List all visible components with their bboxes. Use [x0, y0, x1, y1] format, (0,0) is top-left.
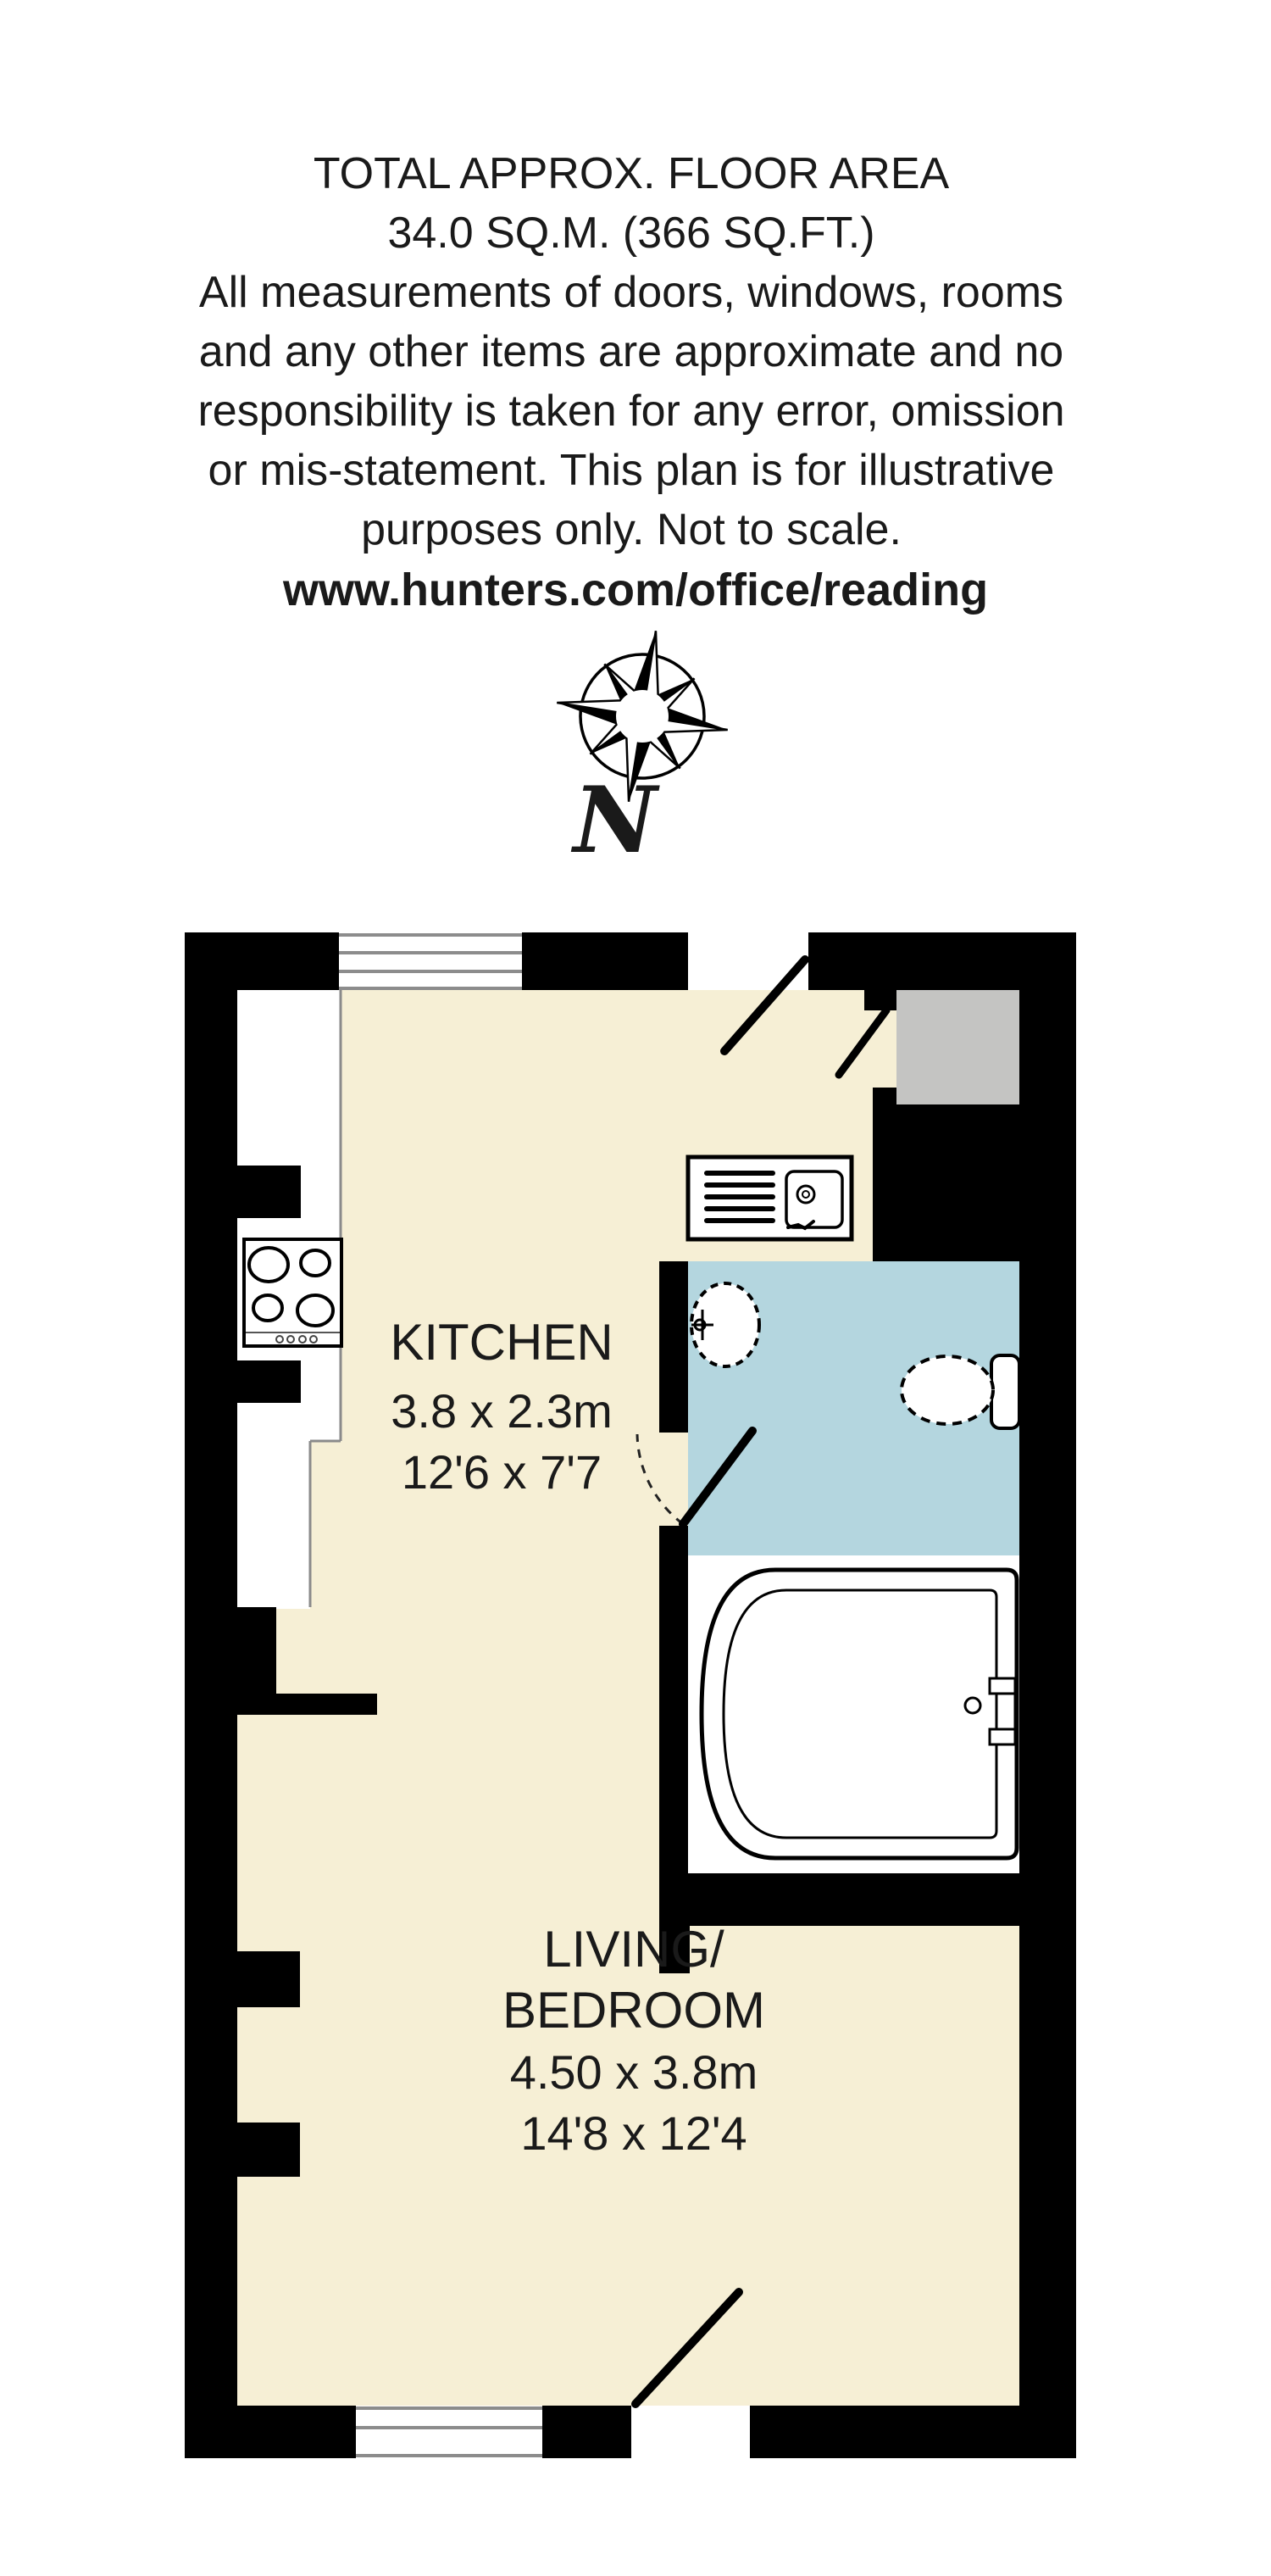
living-name-line2: BEDROOM: [502, 1982, 765, 2039]
north-label: N: [571, 767, 661, 874]
hob: [244, 1239, 341, 1346]
wash-basin: [691, 1283, 759, 1366]
cupboard: [896, 988, 1021, 1104]
living-size-metric: 4.50 x 3.8m: [510, 2045, 758, 2099]
disclaimer-line-4: or mis-statement. This plan is for illus…: [208, 446, 1055, 495]
bath: [702, 1570, 1017, 1858]
disclaimer-line-1: All measurements of doors, windows, room…: [199, 268, 1063, 317]
kitchen-size-metric: 3.8 x 2.3m: [391, 1384, 612, 1438]
window-bottom: [356, 2406, 542, 2458]
kitchen-sink: [688, 1157, 852, 1239]
living-name-line1: LIVING/: [543, 1921, 724, 1978]
floorplan-page: TOTAL APPROX. FLOOR AREA 34.0 SQ.M. (366…: [0, 0, 1271, 2576]
disclaimer-line-2: and any other items are approximate and …: [199, 327, 1063, 376]
kitchen-label: KITCHEN 3.8 x 2.3m 12'6 x 7'7: [390, 1314, 613, 1499]
disclaimer-line-5: purposes only. Not to scale.: [361, 505, 902, 554]
window-top: [339, 932, 522, 990]
header-block: TOTAL APPROX. FLOOR AREA 34.0 SQ.M. (366…: [197, 149, 1064, 615]
floorplan-image: TOTAL APPROX. FLOOR AREA 34.0 SQ.M. (366…: [0, 0, 1271, 2576]
living-size-imperial: 14'8 x 12'4: [520, 2106, 747, 2160]
website-url: www.hunters.com/office/reading: [282, 565, 988, 615]
disclaimer-line-3: responsibility is taken for any error, o…: [197, 387, 1064, 436]
kitchen-name: KITCHEN: [390, 1314, 613, 1371]
kitchen-size-imperial: 12'6 x 7'7: [402, 1445, 602, 1499]
total-floor-area-value: 34.0 SQ.M. (366 SQ.FT.): [387, 209, 874, 258]
floorplan: KITCHEN 3.8 x 2.3m 12'6 x 7'7 LIVING/ BE…: [185, 932, 1076, 2458]
total-floor-area-title: TOTAL APPROX. FLOOR AREA: [314, 149, 950, 198]
